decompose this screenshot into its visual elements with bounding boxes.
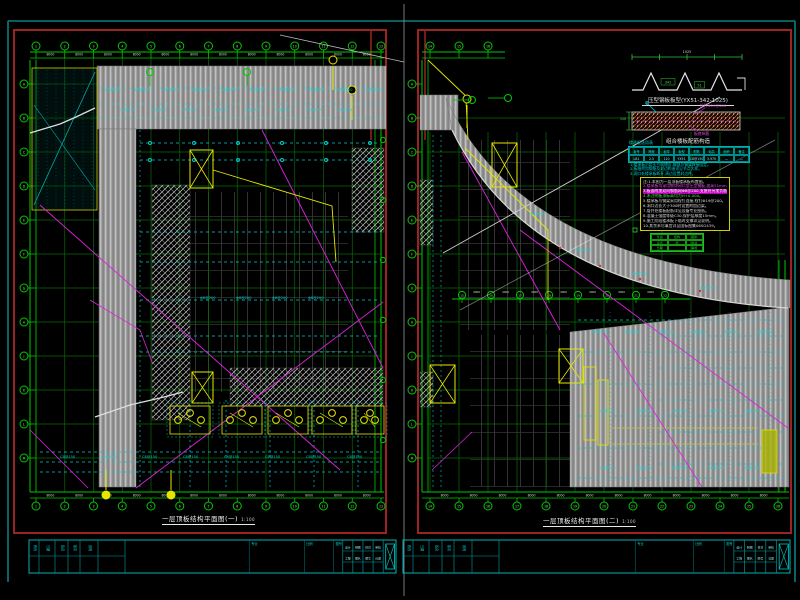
rebar-mark: Φ8@200 <box>221 88 237 92</box>
svg-text:制图: 制图 <box>355 546 361 550</box>
rebar-mark: C8@150 <box>151 108 166 112</box>
svg-text:6: 6 <box>179 504 181 508</box>
rebar-mark: Φ8@200 <box>724 330 740 334</box>
svg-text:F: F <box>23 252 25 256</box>
svg-text:23: 23 <box>689 504 693 508</box>
svg-text:3: 3 <box>92 44 94 48</box>
svg-text:E: E <box>23 218 25 222</box>
svg-text:9: 9 <box>265 504 267 508</box>
rebar-mark: Φ8@200 <box>658 330 674 334</box>
svg-text:图名: 图名 <box>747 557 753 561</box>
svg-text:19: 19 <box>573 504 577 508</box>
rebar-mark: Φ8@200 <box>250 88 266 92</box>
svg-text:A: A <box>411 82 414 86</box>
svg-text:图号: 图号 <box>365 557 371 561</box>
svg-text:8000: 8000 <box>702 493 710 497</box>
rebar-mark: Φ8@200 <box>200 296 216 300</box>
rebar-mark: C8@150 <box>672 409 687 413</box>
stamp-cell: 日期 <box>651 245 668 251</box>
svg-text:8000: 8000 <box>305 53 313 57</box>
rebar-mark: C8@150 <box>60 455 75 459</box>
sheet-title-left: 一层顶板结构平面图(一)1:100 <box>162 513 255 525</box>
svg-text:20: 20 <box>602 504 606 508</box>
svg-text:11: 11 <box>321 504 325 508</box>
rebar-mark: C8@150 <box>636 409 651 413</box>
rebar-mark: Φ8@200 <box>308 296 324 300</box>
svg-text:342: 342 <box>665 81 671 85</box>
svg-text:16: 16 <box>486 44 490 48</box>
cad-drawing-canvas[interactable]: 1122334455667788991010111112121313ABCDEF… <box>0 0 800 600</box>
svg-text:F: F <box>411 252 413 256</box>
svg-text:8000: 8000 <box>557 493 565 497</box>
svg-text:工程: 工程 <box>345 557 351 561</box>
svg-text:8000: 8000 <box>161 53 169 57</box>
title-strip-left: 修改日期签名版次说明专业比例图号设计制图校对审核工程图名图号日期 <box>29 540 396 573</box>
svg-text:8000: 8000 <box>248 493 256 497</box>
svg-text:13: 13 <box>379 44 383 48</box>
svg-text:8000: 8000 <box>219 53 227 57</box>
rebar-mark: C8@150 <box>183 455 198 459</box>
rebar-mark: C8@150 <box>600 409 615 413</box>
rebar-mark: Φ8@200 <box>575 248 591 252</box>
sheet-title-right-text: 一层顶板结构平面图(二) <box>543 517 619 525</box>
svg-text:17: 17 <box>518 293 522 297</box>
deck-table-value: YX51 <box>674 155 689 162</box>
rebar-mark: C8@150 <box>142 455 157 459</box>
svg-text:制图: 制图 <box>747 546 753 550</box>
svg-text:日期: 日期 <box>768 557 774 561</box>
svg-text:4: 4 <box>121 44 123 48</box>
svg-text:4000: 4000 <box>473 290 480 294</box>
svg-text:22: 22 <box>660 504 664 508</box>
svg-text:G: G <box>23 286 26 290</box>
rebar-mark: Φ8@200 <box>636 466 652 470</box>
svg-text:E: E <box>411 218 413 222</box>
svg-text:H: H <box>411 320 414 324</box>
svg-text:4000: 4000 <box>647 290 654 294</box>
svg-text:14: 14 <box>428 44 432 48</box>
svg-text:M: M <box>23 456 26 460</box>
rebar-mark: C8@150 <box>244 108 259 112</box>
svg-text:8000: 8000 <box>46 493 54 497</box>
svg-text:17: 17 <box>515 504 519 508</box>
svg-text:8000: 8000 <box>133 53 141 57</box>
svg-text:8000: 8000 <box>673 493 681 497</box>
deck-table-value: 110 <box>659 155 674 162</box>
rebar-mark: C8@150 <box>265 455 280 459</box>
svg-text:8000: 8000 <box>644 493 652 497</box>
svg-text:A: A <box>23 82 26 86</box>
rebar-mark: C8@150 <box>275 108 290 112</box>
rebar-mark: C8@150 <box>101 455 116 459</box>
svg-text:15: 15 <box>457 504 461 508</box>
svg-text:8000: 8000 <box>190 493 198 497</box>
svg-text:6: 6 <box>179 44 181 48</box>
svg-text:8000: 8000 <box>190 53 198 57</box>
svg-text:4000: 4000 <box>618 290 625 294</box>
svg-text:7: 7 <box>207 44 209 48</box>
svg-text:14: 14 <box>428 504 432 508</box>
svg-text:图名: 图名 <box>355 557 361 561</box>
svg-text:8000: 8000 <box>276 53 284 57</box>
svg-text:1025: 1025 <box>683 50 692 54</box>
deck-table-header: 面积 <box>719 147 734 155</box>
thickness-label: 110 <box>620 117 626 121</box>
rebar-mark: Φ8@200 <box>530 212 546 216</box>
left-sheet-bracing-panel <box>30 68 97 210</box>
svg-text:8000: 8000 <box>470 493 478 497</box>
deck-table-value: — <box>719 155 734 162</box>
rebar-mark: Φ8@200 <box>691 330 707 334</box>
svg-text:审核: 审核 <box>375 546 381 550</box>
svg-text:图号: 图号 <box>758 557 764 561</box>
svg-text:26: 26 <box>776 504 780 508</box>
svg-text:4000: 4000 <box>531 290 538 294</box>
svg-text:8000: 8000 <box>75 53 83 57</box>
svg-text:J: J <box>411 354 413 358</box>
svg-text:比例: 比例 <box>695 541 701 546</box>
svg-text:专业: 专业 <box>251 541 257 546</box>
rebar-mark: Φ8@200 <box>600 466 616 470</box>
svg-text:8000: 8000 <box>104 53 112 57</box>
svg-text:4: 4 <box>121 504 123 508</box>
stamp-cell: 审核 <box>686 245 703 251</box>
svg-text:8000: 8000 <box>248 53 256 57</box>
svg-text:8000: 8000 <box>615 493 623 497</box>
svg-text:2: 2 <box>64 44 66 48</box>
svg-text:H: H <box>23 320 26 324</box>
svg-text:10: 10 <box>293 44 297 48</box>
svg-text:25: 25 <box>747 504 751 508</box>
svg-text:9: 9 <box>265 44 267 48</box>
rebar-mark: C8@150 <box>744 409 759 413</box>
rebar-mark: C8@150 <box>306 108 321 112</box>
rebar-mark: Φ8@200 <box>105 88 121 92</box>
svg-text:8000: 8000 <box>334 493 342 497</box>
sheet-title-right-scale: 1:100 <box>622 519 636 524</box>
rebar-mark: Φ8@200 <box>279 88 295 92</box>
rebar-mark: Φ8@200 <box>708 466 724 470</box>
deck-table-value: C8@150 <box>689 155 704 162</box>
svg-text:8000: 8000 <box>334 53 342 57</box>
svg-text:B: B <box>23 116 25 120</box>
svg-text:4000: 4000 <box>502 290 509 294</box>
svg-text:5: 5 <box>150 504 152 508</box>
deck-note-line: 3.洞口处楼承板断开,周边设置封边件。 <box>630 172 711 177</box>
svg-text:图号: 图号 <box>336 541 342 546</box>
svg-text:8000: 8000 <box>528 493 536 497</box>
rebar-mark: C8@150 <box>708 409 723 413</box>
svg-text:8000: 8000 <box>499 493 507 497</box>
svg-text:2: 2 <box>64 504 66 508</box>
svg-text:审核: 审核 <box>768 546 774 550</box>
svg-text:签名: 签名 <box>435 545 440 551</box>
rebar-mark: Φ8@200 <box>236 296 252 300</box>
sheet-title-left-text: 一层顶板结构平面图(一) <box>162 515 238 523</box>
sheet-title-left-scale: 1:100 <box>241 517 255 522</box>
deck-cyan-notes: 1.楼承板沿箭头方向铺设,端部与钢梁焊接固定。2.板缝附加钢筋及封边构造详见节点… <box>630 163 711 177</box>
svg-text:L: L <box>23 422 25 426</box>
svg-text:13: 13 <box>379 504 383 508</box>
rebar-mark: C8@150 <box>337 108 352 112</box>
green-stamp-table: 专业结构图别设计施校对日期审核 <box>650 233 704 252</box>
svg-text:8000: 8000 <box>363 493 371 497</box>
rebar-mark: Φ8@200 <box>592 330 608 334</box>
svg-text:12: 12 <box>350 44 354 48</box>
rebar-mark: C8@150 <box>213 108 228 112</box>
deck-table-value: LB1 <box>629 155 644 162</box>
svg-text:图号: 图号 <box>726 541 732 546</box>
general-notes-box: 注:1.本图为一层顶板楼承板布置图。2.楼承板均采用镀锌闭口型压型钢板,波高51… <box>640 177 730 231</box>
svg-text:C: C <box>411 150 414 154</box>
rebar-mark: Φ8@200 <box>134 88 150 92</box>
svg-text:8000: 8000 <box>46 53 54 57</box>
svg-text:版次: 版次 <box>73 545 78 552</box>
svg-text:16: 16 <box>486 504 490 508</box>
svg-text:19: 19 <box>576 293 580 297</box>
svg-text:设计: 设计 <box>345 546 351 550</box>
svg-text:21: 21 <box>634 293 638 297</box>
svg-text:工程: 工程 <box>736 557 742 561</box>
rebar-mark: Φ8@200 <box>192 88 208 92</box>
svg-text:校对: 校对 <box>365 546 371 550</box>
svg-text:K: K <box>23 388 26 392</box>
svg-text:8000: 8000 <box>586 493 594 497</box>
svg-text:5: 5 <box>150 44 152 48</box>
rebar-label: 板底纵筋 <box>694 131 709 137</box>
svg-text:8000: 8000 <box>219 493 227 497</box>
general-note-line: 10.其余未尽事宜详见国标图集06SG439。 <box>643 224 727 229</box>
deck-table-header: 板号 <box>629 147 644 155</box>
rebar-mark: C8@150 <box>224 455 239 459</box>
svg-text:L: L <box>411 422 413 426</box>
rebar-mark: C8@150 <box>347 455 362 459</box>
svg-text:3: 3 <box>92 504 94 508</box>
rebar-mark: Φ8@200 <box>632 272 648 276</box>
deck-table-value: 2.5 <box>644 155 659 162</box>
svg-text:7: 7 <box>207 504 209 508</box>
svg-text:8000: 8000 <box>75 493 83 497</box>
svg-text:版次: 版次 <box>447 545 452 552</box>
deck-table-header: 备注 <box>734 147 749 155</box>
svg-text:8: 8 <box>236 504 238 508</box>
sheet-title-right: 一层顶板结构平面图(二)1:100 <box>543 515 636 527</box>
svg-text:1: 1 <box>35 504 37 508</box>
rebar-mark: Φ8@200 <box>744 466 760 470</box>
svg-text:K: K <box>411 388 414 392</box>
svg-text:18: 18 <box>544 504 548 508</box>
svg-text:4000: 4000 <box>589 290 596 294</box>
svg-text:12: 12 <box>350 504 354 508</box>
deck-table-header: 标高 <box>704 147 719 155</box>
deck-table-header: 配筋 <box>689 147 704 155</box>
rebar-mark: C8@150 <box>120 108 135 112</box>
svg-text:51: 51 <box>697 84 701 88</box>
svg-text:修改: 修改 <box>407 545 412 552</box>
rebar-mark: Φ8@200 <box>700 286 716 290</box>
svg-text:设计: 设计 <box>736 546 742 550</box>
title-strip-right: 修改日期签名版次说明专业比例图号设计制图校对审核工程图名图号日期 <box>403 540 790 573</box>
svg-text:21: 21 <box>631 504 635 508</box>
rebar-mark: Φ8@200 <box>163 88 179 92</box>
svg-text:C: C <box>23 150 26 154</box>
svg-text:8000: 8000 <box>276 493 284 497</box>
rebar-mark: Φ8@200 <box>272 296 288 300</box>
rebar-mark: Φ8@200 <box>337 88 353 92</box>
rebar-mark: Φ8@200 <box>625 330 641 334</box>
svg-text:4000: 4000 <box>560 290 567 294</box>
rebar-mark: C8@150 <box>182 108 197 112</box>
svg-text:M: M <box>411 456 414 460</box>
svg-text:G: G <box>411 286 414 290</box>
svg-text:说明: 说明 <box>462 545 467 551</box>
svg-text:D: D <box>411 184 414 188</box>
svg-text:15: 15 <box>457 44 461 48</box>
svg-text:日期: 日期 <box>46 545 51 551</box>
svg-text:校对: 校对 <box>758 546 764 550</box>
rebar-mark: Φ8@200 <box>308 88 324 92</box>
svg-text:10: 10 <box>293 504 297 508</box>
svg-text:B: B <box>411 116 413 120</box>
svg-text:D: D <box>23 184 26 188</box>
rebar-mark: Φ8@200 <box>672 466 688 470</box>
stamp-cell <box>668 245 685 251</box>
studs-label: 栓钉Φ19@200 <box>700 103 726 109</box>
svg-text:签名: 签名 <box>61 545 66 551</box>
left-sheet-courtyard-grid <box>188 192 348 392</box>
deck-table-value: — <box>734 155 749 162</box>
deck-table-value: 3.970 <box>704 155 719 162</box>
svg-text:修改: 修改 <box>33 545 38 552</box>
svg-text:22: 22 <box>663 293 667 297</box>
svg-text:8000: 8000 <box>305 493 313 497</box>
rebar-mark: Φ8@200 <box>757 330 773 334</box>
svg-text:J: J <box>23 354 25 358</box>
deck-table-header: 跨度 <box>644 147 659 155</box>
svg-text:15: 15 <box>460 293 464 297</box>
svg-text:日期: 日期 <box>420 545 425 551</box>
svg-text:8000: 8000 <box>731 493 739 497</box>
svg-text:1: 1 <box>35 44 37 48</box>
deck-table-header: 板型 <box>674 147 689 155</box>
rebar-mark: C8@150 <box>306 455 321 459</box>
svg-text:8000: 8000 <box>760 493 768 497</box>
svg-text:专业: 专业 <box>637 541 643 546</box>
rebar-mark: Φ8@200 <box>366 88 382 92</box>
deck-selection-table: 板号跨度板厚板型配筋标高面积备注LB12.5110YX51C8@1503.970… <box>628 146 750 163</box>
svg-text:比例: 比例 <box>306 541 312 546</box>
svg-text:8000: 8000 <box>441 493 449 497</box>
svg-text:日期: 日期 <box>375 557 381 561</box>
svg-text:8000: 8000 <box>133 493 141 497</box>
deck-table-header: 板厚 <box>659 147 674 155</box>
svg-text:8: 8 <box>236 44 238 48</box>
svg-text:24: 24 <box>718 504 722 508</box>
svg-text:说明: 说明 <box>88 545 93 551</box>
